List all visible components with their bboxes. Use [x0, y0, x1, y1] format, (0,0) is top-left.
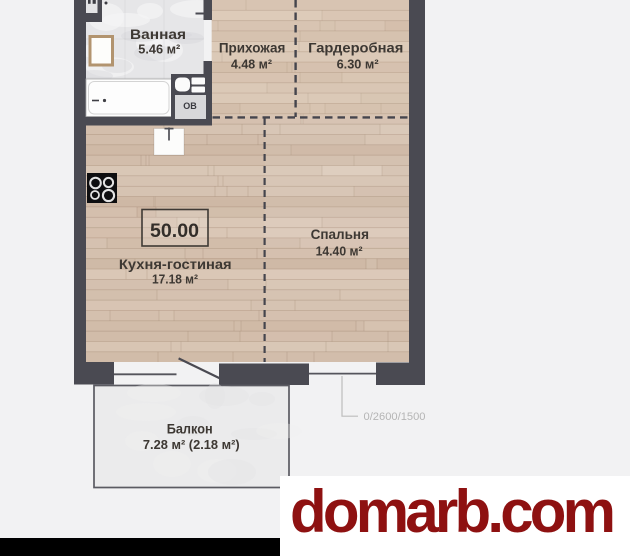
svg-text:6.30 м²: 6.30 м²	[337, 58, 379, 72]
svg-text:domarb.com: domarb.com	[290, 478, 616, 545]
svg-text:17.18 м²: 17.18 м²	[152, 273, 198, 287]
svg-text:ОВ: ОВ	[183, 101, 197, 111]
svg-text:0/2600/1500: 0/2600/1500	[364, 411, 426, 423]
svg-text:Ванная: Ванная	[130, 26, 186, 42]
svg-text:Гардеробная: Гардеробная	[308, 40, 403, 56]
svg-text:Балкон: Балкон	[167, 422, 213, 437]
svg-text:14.40 м²: 14.40 м²	[316, 245, 363, 259]
svg-text:50.00: 50.00	[150, 221, 199, 242]
svg-text:7.28 м² (2.18 м²): 7.28 м² (2.18 м²)	[143, 438, 240, 452]
svg-text:4.48 м²: 4.48 м²	[231, 58, 272, 72]
svg-text:Кухня-гостиная: Кухня-гостиная	[119, 256, 232, 272]
svg-text:Прихожая: Прихожая	[219, 40, 286, 56]
svg-text:Спальня: Спальня	[311, 226, 369, 242]
svg-text:5.46 м²: 5.46 м²	[138, 43, 180, 57]
